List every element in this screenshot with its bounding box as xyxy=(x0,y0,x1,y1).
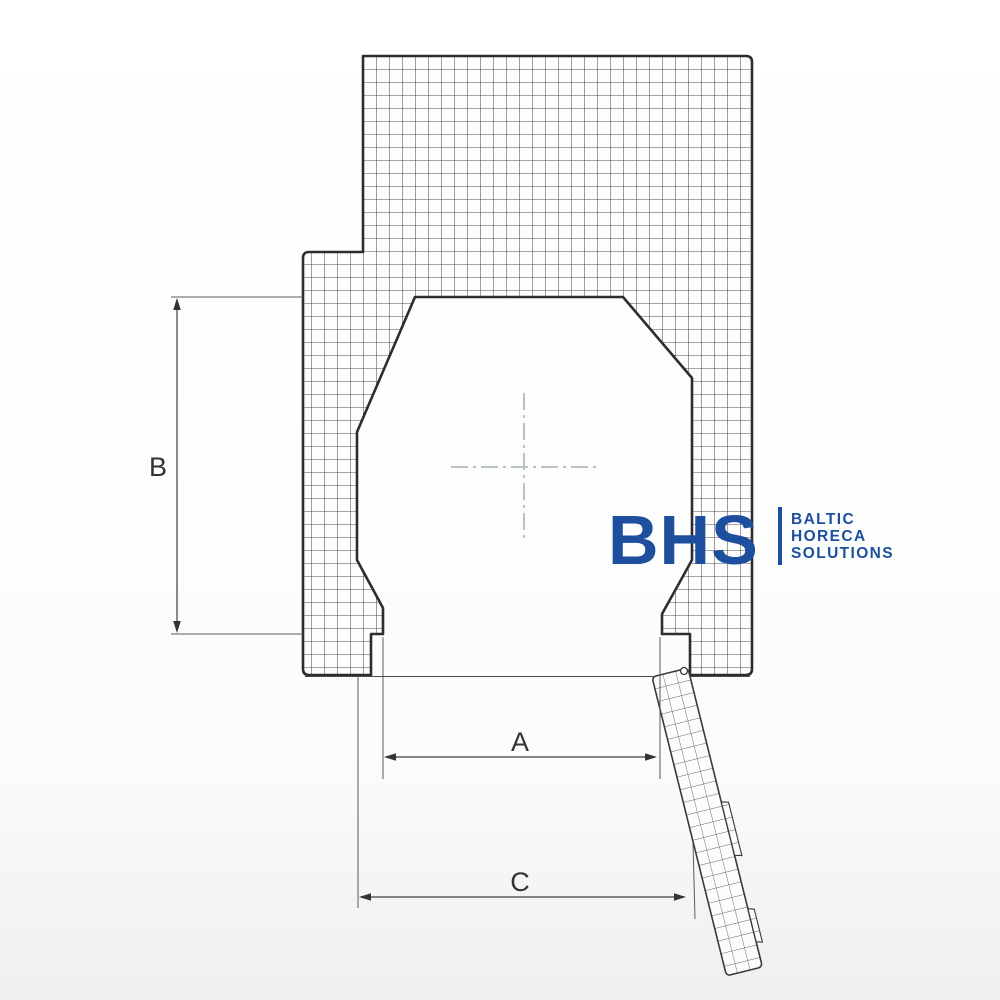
logo-name-line-3: SOLUTIONS xyxy=(791,545,894,562)
hinge-pin-icon xyxy=(681,668,688,675)
technical-drawing-canvas: B A C BHS BALTIC HORECA SOLUTIONS xyxy=(0,0,1000,1000)
logo-name-line-1: BALTIC xyxy=(791,511,855,528)
logo-abbr-text: BHS xyxy=(608,501,759,579)
dimension-c-label: C xyxy=(510,867,530,897)
logo-divider-bar xyxy=(778,507,782,565)
machine-cross-section-drawing: B A C BHS BALTIC HORECA SOLUTIONS xyxy=(0,0,1000,1000)
logo-name-line-2: HORECA xyxy=(791,528,867,545)
dimension-a-label: A xyxy=(511,727,529,757)
dimension-b-label: B xyxy=(149,452,167,482)
